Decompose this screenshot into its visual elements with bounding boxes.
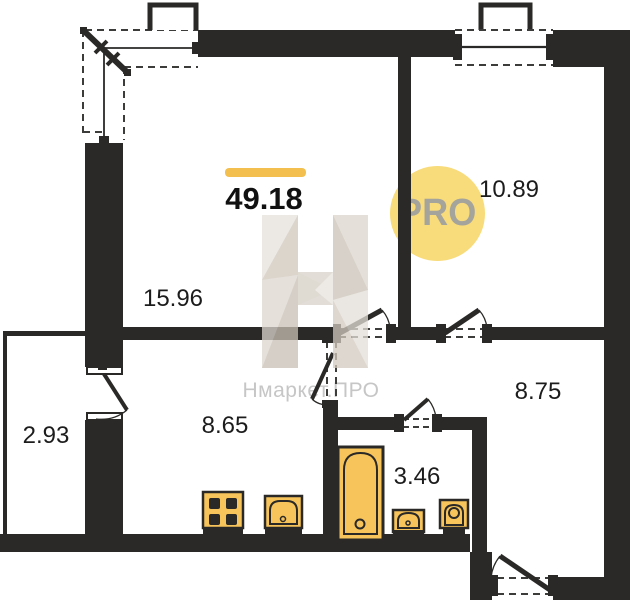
bathroom-door bbox=[394, 399, 442, 432]
washbasin-icon bbox=[393, 510, 424, 538]
room-label-bedroom: 10.89 bbox=[479, 176, 539, 204]
room-label-balcony: 2.93 bbox=[23, 422, 70, 450]
balcony-door bbox=[87, 364, 127, 420]
duct-outline-right bbox=[481, 5, 530, 30]
room-label-bathroom: 3.46 bbox=[394, 463, 441, 491]
living-room-door bbox=[333, 310, 396, 343]
total-area-label: 49.18 bbox=[225, 181, 303, 217]
room-label-kitchen: 8.65 bbox=[202, 412, 249, 440]
entrance-door bbox=[488, 556, 558, 596]
duct-outline-left bbox=[150, 5, 196, 30]
toilet-icon bbox=[440, 500, 468, 540]
bedroom-window bbox=[453, 30, 555, 65]
room-label-hallway: 8.75 bbox=[515, 378, 562, 406]
room-label-living: 15.96 bbox=[143, 285, 203, 313]
corner-loggia-window bbox=[80, 27, 200, 144]
bedroom-door bbox=[436, 310, 492, 343]
total-area-accent-bar bbox=[225, 168, 306, 177]
plan-linework bbox=[0, 0, 630, 600]
kitchen-door bbox=[312, 335, 338, 408]
kitchen-sink-icon bbox=[265, 496, 302, 536]
stove-icon bbox=[203, 492, 243, 536]
bathtub-icon bbox=[338, 447, 383, 540]
